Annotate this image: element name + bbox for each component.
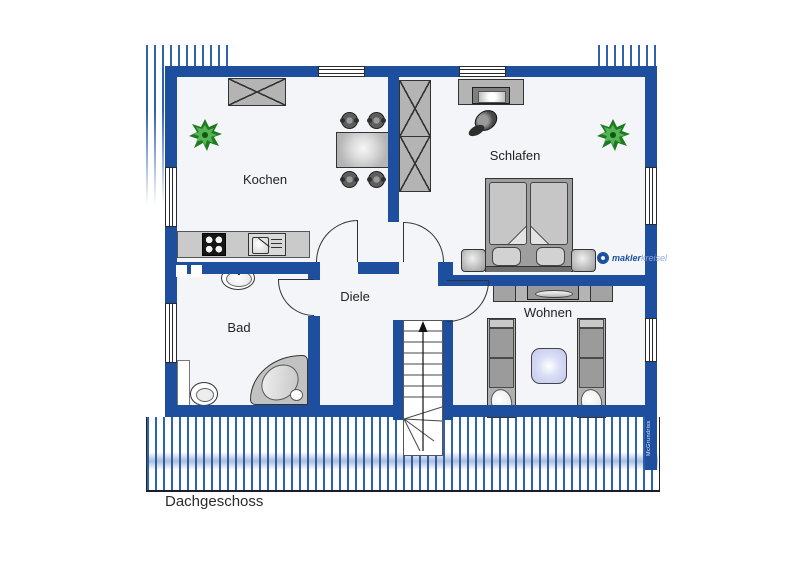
sofa-cushion	[489, 328, 514, 358]
wall-niche	[191, 265, 202, 277]
room-label-diele: Diele	[330, 289, 380, 304]
wall-kochen-schlafen	[388, 77, 399, 222]
bedroom-wardrobe	[399, 80, 431, 192]
tv	[527, 285, 579, 300]
sofa-armrest	[489, 319, 514, 328]
sofa-cushion	[489, 358, 514, 388]
nightstand	[571, 249, 596, 272]
dining-chair	[368, 112, 385, 129]
wall-bottom-right	[453, 405, 657, 417]
bed-pillow	[492, 247, 521, 266]
sofa-cushion	[579, 358, 604, 388]
window	[165, 303, 177, 363]
kitchen-counter	[177, 231, 310, 258]
door-leaf-bad	[278, 279, 314, 280]
roof-hatch-fade-left	[146, 110, 164, 205]
dining-chair	[368, 171, 385, 188]
dining-chair	[341, 171, 358, 188]
plant-icon	[188, 118, 222, 152]
sofa	[577, 318, 606, 418]
wardrobe-section	[400, 136, 430, 191]
room-label-wohnen: Wohnen	[513, 305, 583, 320]
wall-bottom-left	[165, 405, 393, 417]
wall-niche	[176, 265, 187, 277]
stove	[202, 233, 226, 256]
mattress	[530, 182, 568, 245]
plant-icon	[596, 118, 630, 152]
floor-title: Dachgeschoss	[165, 493, 263, 510]
wall-bad-right-stub	[308, 262, 320, 280]
stair-stringer-right	[443, 320, 453, 420]
staircase	[403, 320, 443, 456]
stair-stringer-left	[393, 320, 403, 420]
room-label-schlafen: Schlafen	[470, 148, 560, 163]
door-leaf-kochen	[357, 220, 358, 262]
sink	[248, 233, 286, 256]
bed-footboard	[486, 266, 571, 272]
sink-drainer	[271, 239, 282, 251]
bathtub-headrest	[290, 389, 303, 401]
dining-table	[336, 132, 390, 168]
door-leaf-wohnen	[447, 280, 489, 281]
toilet-bowl	[196, 388, 214, 402]
monitor	[472, 87, 510, 104]
monitor-screen	[478, 91, 506, 103]
nightstand	[461, 249, 486, 272]
dining-chair	[341, 112, 358, 129]
desk	[458, 79, 524, 105]
room-label-kochen: Kochen	[225, 172, 305, 187]
logo-text-light: kreisel	[641, 253, 667, 263]
wall-top	[165, 66, 657, 77]
wall-left	[165, 66, 177, 417]
sofa-armrest	[579, 319, 604, 328]
room-label-bad: Bad	[214, 320, 264, 335]
floorplan: Kochen Schlafen Bad Diele Wohnen Dachges…	[0, 0, 800, 566]
wardrobe-section	[400, 81, 430, 137]
watermark-text: McGrundriss	[646, 418, 657, 458]
window	[459, 66, 506, 77]
sofa-cushion	[579, 328, 604, 358]
window	[645, 318, 657, 362]
roof-hatch-glow	[146, 452, 658, 470]
staircase-treads	[404, 321, 442, 455]
wall-bad-right	[308, 316, 320, 417]
double-bed	[485, 178, 573, 272]
door-leaf-schlafen	[403, 222, 404, 262]
tv-screen	[535, 290, 573, 298]
window	[645, 167, 657, 225]
coffee-table	[531, 348, 567, 384]
mattress	[489, 182, 527, 245]
window	[318, 66, 365, 77]
maklerkreisel-icon	[597, 252, 609, 264]
maklerkreisel-logo: maklerkreisel	[597, 252, 667, 264]
wall-bad-top	[165, 262, 316, 274]
kitchen-wardrobe	[228, 78, 286, 106]
window	[165, 167, 177, 227]
sofa	[487, 318, 516, 418]
bed-pillow	[536, 247, 565, 266]
logo-text-bold: makler	[612, 253, 641, 263]
toilet	[190, 382, 218, 406]
wall-diele-top	[358, 262, 399, 274]
